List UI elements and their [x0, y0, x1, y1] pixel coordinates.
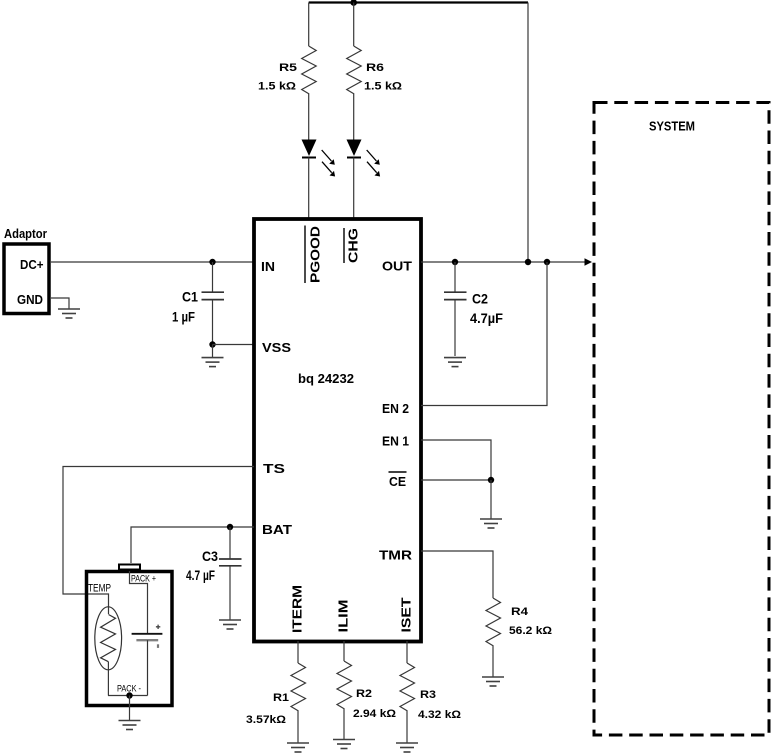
svg-text:EN 1: EN 1: [382, 434, 409, 449]
svg-text:4.32 kΩ: 4.32 kΩ: [418, 709, 461, 721]
svg-text:PACK +: PACK +: [131, 574, 156, 585]
svg-text:ISET: ISET: [399, 597, 414, 632]
svg-text:CE: CE: [389, 474, 406, 489]
svg-text:TMR: TMR: [379, 548, 413, 563]
svg-text:56.2 kΩ: 56.2 kΩ: [509, 625, 552, 637]
svg-text:R2: R2: [356, 688, 372, 700]
svg-text:TEMP: TEMP: [88, 583, 111, 595]
svg-text:C2: C2: [472, 292, 488, 307]
svg-text:Adaptor: Adaptor: [4, 226, 47, 241]
svg-text:1 µF: 1 µF: [172, 310, 195, 325]
svg-text:4.7µF: 4.7µF: [470, 311, 503, 326]
svg-text:R1: R1: [273, 692, 289, 704]
svg-text:EN 2: EN 2: [382, 401, 409, 416]
svg-text:DC+: DC+: [20, 257, 44, 272]
svg-text:ILIM: ILIM: [336, 600, 351, 633]
svg-text:C3: C3: [202, 549, 218, 564]
svg-text:TS: TS: [263, 461, 285, 476]
svg-text:ITERM: ITERM: [290, 585, 305, 633]
svg-text:C1: C1: [182, 290, 198, 305]
svg-text:PGOOD: PGOOD: [308, 226, 323, 283]
svg-text:R3: R3: [420, 689, 436, 701]
svg-text:SYSTEM: SYSTEM: [649, 119, 695, 134]
svg-text:3.57kΩ: 3.57kΩ: [246, 714, 286, 726]
svg-text:4.7 µF: 4.7 µF: [186, 568, 215, 583]
svg-text:R5: R5: [279, 62, 297, 74]
svg-text:IN: IN: [261, 259, 275, 274]
svg-text:R6: R6: [366, 62, 384, 74]
svg-text:bq 24232: bq 24232: [298, 372, 354, 386]
svg-text:1.5 kΩ: 1.5 kΩ: [364, 81, 402, 93]
svg-text:GND: GND: [17, 292, 43, 307]
svg-text:OUT: OUT: [382, 259, 412, 274]
svg-text:VSS: VSS: [262, 340, 291, 355]
svg-text:1.5 kΩ: 1.5 kΩ: [258, 81, 296, 93]
svg-text:CHG: CHG: [346, 228, 361, 263]
svg-text:R4: R4: [511, 606, 529, 618]
svg-text:BAT: BAT: [262, 522, 292, 537]
svg-text:2.94 kΩ: 2.94 kΩ: [353, 708, 396, 720]
